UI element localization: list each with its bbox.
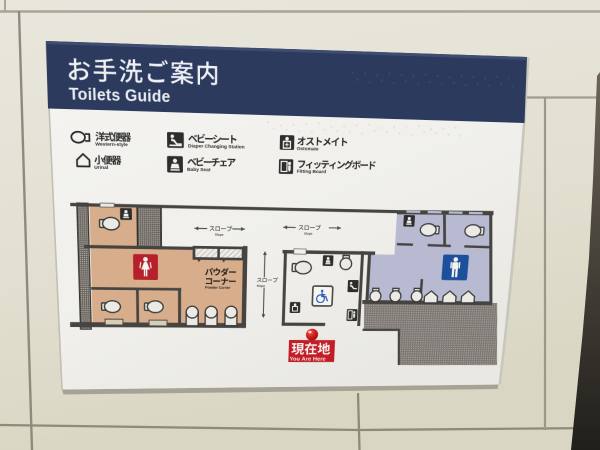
svg-text:Fitting Board: Fitting Board: [297, 169, 326, 175]
svg-text:Diaper Changing Station: Diaper Changing Station: [188, 144, 245, 151]
svg-text:Ostomate: Ostomate: [297, 146, 319, 152]
svg-text:Toilets Guide: Toilets Guide: [68, 85, 170, 106]
svg-text:Baby Seat: Baby Seat: [187, 167, 211, 173]
svg-text:Slope: Slope: [257, 284, 266, 288]
svg-text:Western-style: Western-style: [95, 142, 128, 148]
svg-text:Powder Corner: Powder Corner: [205, 285, 231, 290]
svg-text:Slope: Slope: [215, 233, 224, 237]
svg-text:Urinal: Urinal: [94, 165, 109, 171]
svg-text:Slope: Slope: [304, 232, 313, 236]
svg-text:You Are Here: You Are Here: [290, 356, 326, 362]
